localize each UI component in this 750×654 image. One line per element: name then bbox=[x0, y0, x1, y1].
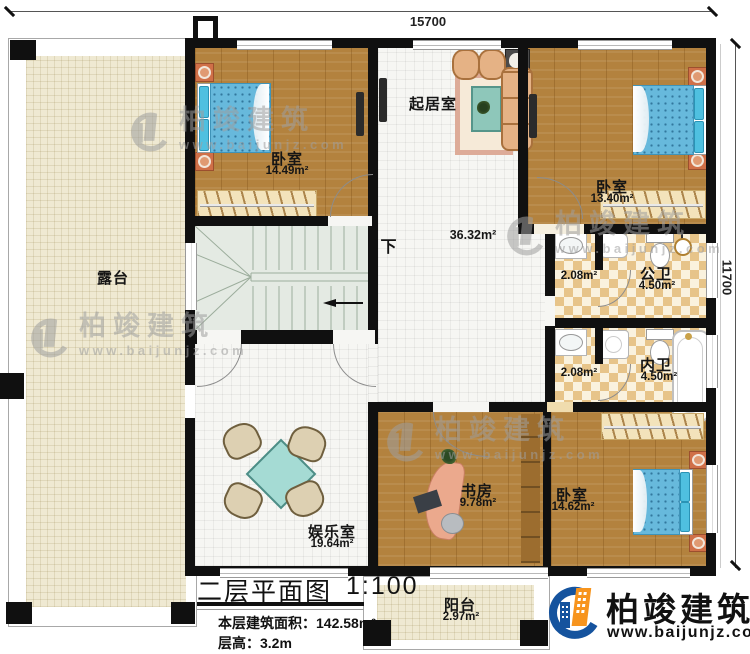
window bbox=[706, 465, 718, 533]
door-opening bbox=[197, 330, 241, 344]
public-wash-area: 2.08m² bbox=[549, 270, 609, 282]
door-opening bbox=[545, 296, 555, 326]
shower-icon bbox=[599, 233, 628, 258]
pillow-icon bbox=[680, 472, 690, 502]
closet-icon bbox=[601, 413, 704, 440]
door-opening bbox=[333, 330, 375, 344]
pillow-icon bbox=[199, 119, 209, 151]
column bbox=[171, 602, 195, 624]
right-dimension-label: 11700 bbox=[720, 246, 735, 310]
nightstand-icon bbox=[195, 63, 214, 82]
brand-logo-icon bbox=[544, 582, 602, 646]
window bbox=[587, 568, 690, 578]
wall bbox=[368, 402, 716, 412]
floor-height-label: 层高： bbox=[218, 635, 260, 651]
armchair-icon bbox=[452, 49, 480, 80]
private-bath-area: 4.50m² bbox=[628, 371, 690, 383]
floor-height-value: 3.2m bbox=[260, 635, 292, 651]
terrace-floor bbox=[26, 56, 186, 607]
title-underline-thin bbox=[197, 609, 364, 610]
floor-area-value: 142.58m² bbox=[316, 615, 376, 631]
terrace-label: 露台 bbox=[85, 267, 141, 288]
column bbox=[0, 373, 24, 399]
tv-icon bbox=[356, 92, 364, 136]
wall bbox=[595, 328, 603, 364]
column bbox=[6, 602, 32, 624]
bedroom2-area: 13.40m² bbox=[574, 193, 650, 205]
bedroom3-area: 14.62m² bbox=[537, 501, 609, 513]
pillow-icon bbox=[199, 86, 209, 118]
wall bbox=[518, 48, 528, 224]
private-wash-area: 2.08m² bbox=[549, 367, 609, 379]
office-chair-icon bbox=[441, 513, 464, 534]
basin-icon bbox=[559, 334, 583, 351]
pillow-icon bbox=[694, 88, 704, 120]
bedroom1-area: 14.49m² bbox=[249, 165, 325, 177]
sliding-door bbox=[430, 567, 548, 579]
window bbox=[706, 243, 718, 298]
door-opening bbox=[185, 385, 195, 418]
basin-icon bbox=[559, 237, 583, 254]
washer-door bbox=[605, 336, 622, 353]
entertainment-area: 19.64m² bbox=[294, 538, 370, 550]
plant-icon bbox=[441, 449, 456, 464]
wall bbox=[595, 234, 603, 270]
living-room-label: 起居室 bbox=[393, 93, 473, 114]
door-opening bbox=[328, 216, 372, 226]
window bbox=[706, 335, 718, 388]
stairs-icon bbox=[195, 226, 368, 330]
pillow-icon bbox=[694, 121, 704, 153]
bed-sheet-fold bbox=[253, 84, 269, 150]
window bbox=[413, 40, 501, 50]
window bbox=[237, 40, 332, 50]
closet-icon bbox=[197, 190, 317, 219]
hall-floor bbox=[378, 224, 545, 402]
floor-area-label: 本层建筑面积： bbox=[218, 615, 316, 631]
title-underline bbox=[197, 602, 364, 606]
tv-icon bbox=[529, 94, 537, 138]
study-area: 9.78m² bbox=[447, 497, 509, 509]
door-opening bbox=[547, 402, 573, 412]
floor-plan-canvas: 15700 11700 bbox=[0, 0, 750, 654]
tv-icon bbox=[379, 78, 387, 122]
door-opening bbox=[534, 224, 584, 234]
faucet-icon bbox=[685, 333, 692, 340]
floor-area-row: 本层建筑面积：142.58m² bbox=[218, 613, 376, 633]
wall bbox=[368, 224, 378, 338]
nightstand-icon bbox=[195, 152, 214, 171]
pillow-icon bbox=[680, 502, 690, 532]
wall bbox=[545, 318, 716, 328]
window bbox=[185, 243, 197, 310]
lamp-icon bbox=[674, 238, 692, 256]
balcony-area: 2.97m² bbox=[430, 611, 492, 623]
toilet-icon bbox=[646, 329, 674, 340]
nightstand-icon bbox=[688, 67, 707, 86]
stairs-down-label: 下 bbox=[378, 233, 400, 257]
bookshelf-icon bbox=[521, 414, 540, 563]
brand-website: www.baijunjz.com bbox=[607, 624, 750, 642]
top-dimension-line bbox=[10, 11, 712, 12]
right-dimension-line bbox=[735, 44, 736, 568]
window bbox=[578, 40, 672, 50]
hall-area: 36.32m² bbox=[438, 228, 508, 242]
floor-height-row: 层高：3.2m bbox=[218, 633, 292, 653]
public-bath-area: 4.50m² bbox=[626, 280, 688, 292]
door-opening bbox=[433, 402, 489, 412]
top-dimension-label: 15700 bbox=[396, 14, 460, 29]
column bbox=[10, 40, 36, 60]
